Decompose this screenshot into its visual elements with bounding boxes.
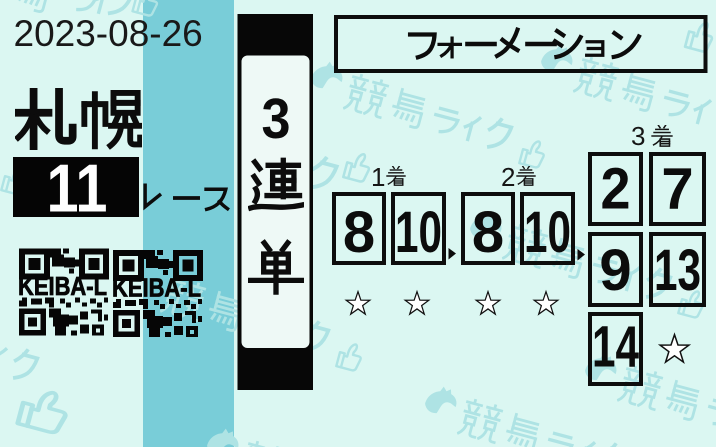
svg-text:3: 3 bbox=[631, 121, 645, 151]
svg-text:3: 3 bbox=[262, 87, 291, 151]
svg-text:7: 7 bbox=[661, 157, 693, 222]
svg-text:1: 1 bbox=[371, 162, 385, 192]
svg-text:8: 8 bbox=[343, 200, 375, 265]
svg-text:9: 9 bbox=[599, 238, 631, 303]
svg-text:10: 10 bbox=[524, 200, 571, 265]
svg-text:8: 8 bbox=[472, 200, 504, 265]
svg-text:2: 2 bbox=[501, 162, 515, 192]
svg-text:KEIBA-L: KEIBA-L bbox=[18, 271, 107, 301]
svg-text:13: 13 bbox=[654, 238, 701, 303]
svg-text:10: 10 bbox=[395, 200, 442, 265]
svg-text:11: 11 bbox=[47, 151, 108, 227]
svg-text:2: 2 bbox=[601, 157, 631, 222]
svg-text:14: 14 bbox=[592, 315, 639, 380]
svg-text:2023-08-26: 2023-08-26 bbox=[14, 13, 203, 54]
